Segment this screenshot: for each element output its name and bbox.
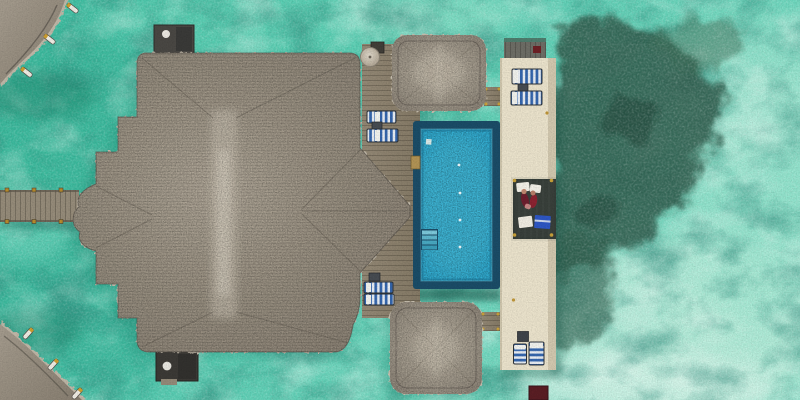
aerial-villa-photo (0, 0, 800, 400)
scene-canvas (0, 0, 800, 400)
photo-grain (0, 0, 800, 400)
